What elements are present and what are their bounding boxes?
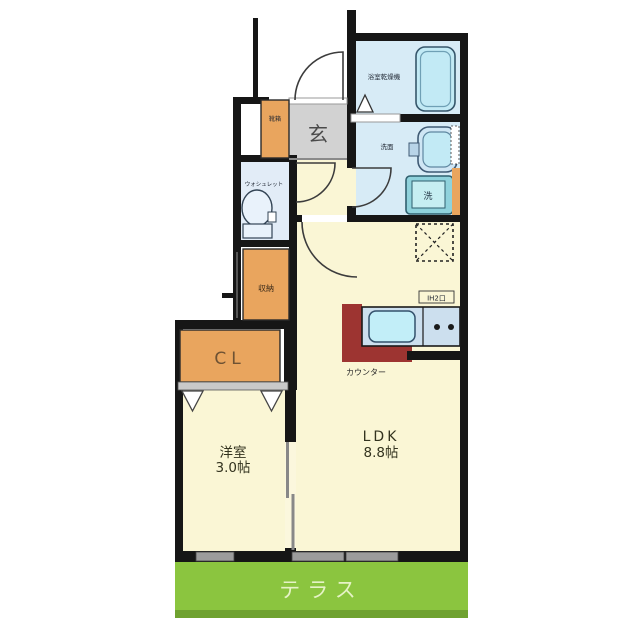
entrance-label: 玄 (308, 122, 328, 146)
wall-bath-left (347, 10, 356, 168)
western-room-name: 洋室 (220, 444, 247, 461)
closet-track (178, 382, 288, 390)
toilet-handle (268, 212, 276, 222)
storage-label: 収納 (258, 283, 274, 293)
ldk-window-right (346, 552, 398, 561)
washstand-label: 洗面 (381, 142, 395, 151)
bathtub (416, 47, 455, 111)
ldk-size: 8.8帖 (364, 445, 399, 461)
kitchen-sink (369, 311, 415, 342)
ldk-window-left (292, 552, 344, 561)
kitchen-bar (407, 351, 460, 360)
sliding-door-panel-2 (292, 494, 295, 550)
floor-plan-drawing: テラス 靴箱 玄 ウォシュレット (0, 0, 640, 640)
pipe-space (452, 168, 460, 215)
washroom-window (451, 126, 459, 164)
entrance-door-arc (295, 52, 343, 100)
washer-label: 洗 (423, 190, 432, 202)
western-room-window (196, 552, 234, 561)
counter-label: カウンター (346, 368, 386, 377)
wall-cl-right (284, 320, 297, 390)
toilet-tank (243, 224, 272, 238)
ldk-name: LDK (363, 429, 400, 445)
shoebox (261, 100, 289, 158)
wall-toilet-bottom (233, 240, 296, 247)
washbasin-tap (409, 143, 419, 156)
stove-burner-left (434, 324, 440, 330)
room-sliding-door (285, 442, 296, 550)
windows (196, 552, 398, 561)
entrance-sill (289, 98, 347, 104)
washbasin-sink (423, 132, 452, 167)
entrance-step-line (289, 158, 347, 160)
western-room-size: 3.0帖 (216, 460, 251, 476)
ldk-floor (296, 222, 460, 551)
terrace-label: テラス (279, 578, 363, 602)
bath-door-track (351, 114, 400, 122)
wall-bath-wash-divider (400, 114, 460, 122)
wall-wash-left-lower (347, 206, 356, 222)
sliding-door-panel-1 (286, 442, 289, 498)
wall-right (460, 33, 468, 562)
closet-label: CL (214, 349, 245, 369)
wall-top-bath (347, 33, 468, 41)
stove-burner-right (448, 324, 454, 330)
wall-rooms-upper (285, 388, 296, 442)
storage-door-line (236, 252, 238, 318)
bath-dryer-label: 浴室乾燥機 (368, 72, 401, 81)
storage: 収納 (236, 249, 289, 320)
stove-tag-label: IH2口 (427, 295, 446, 303)
floor-plan-canvas: テラス 靴箱 玄 ウォシュレット (0, 0, 640, 640)
wall-hall-bottom-left (289, 215, 302, 222)
wall-wash-bottom (356, 215, 460, 222)
wall-stub-vertical (253, 18, 258, 101)
terrace-edge (175, 610, 468, 618)
shoebox-label: 靴箱 (269, 115, 281, 123)
wall-tick-left (222, 293, 234, 298)
terrace: テラス (175, 562, 468, 618)
toilet-label: ウォシュレット (245, 180, 283, 188)
